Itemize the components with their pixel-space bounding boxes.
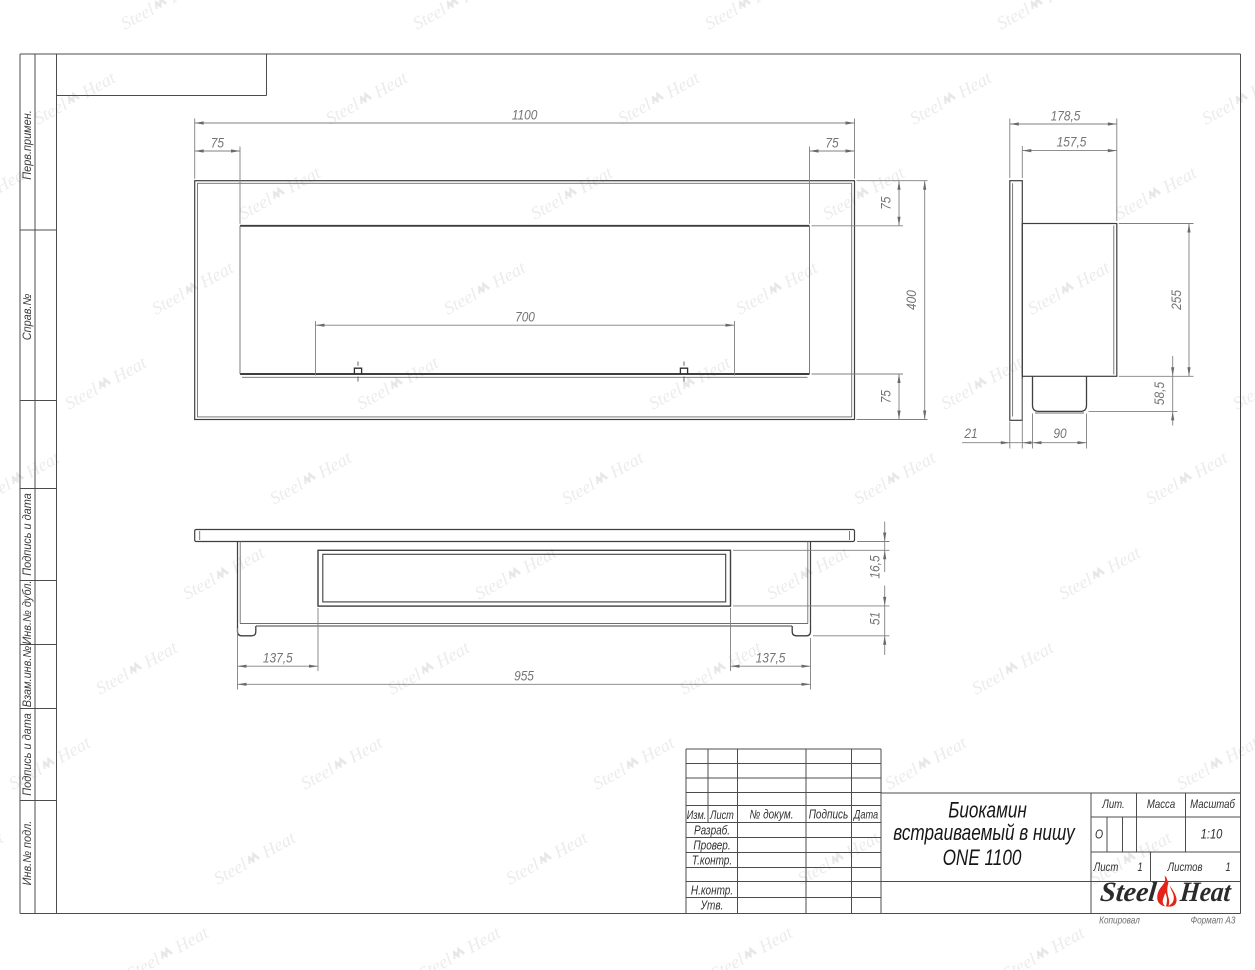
svg-text:Масштаб: Масштаб: [1190, 798, 1236, 811]
svg-text:О: О: [1095, 827, 1103, 841]
svg-text:1: 1: [1137, 861, 1142, 874]
svg-text:Взам.инв.№: Взам.инв.№: [22, 646, 34, 707]
svg-text:Лист: Лист: [1093, 861, 1119, 874]
svg-text:Изм.: Изм.: [687, 810, 707, 822]
svg-text:51: 51: [867, 612, 883, 625]
svg-text:75: 75: [211, 135, 225, 151]
svg-text:255: 255: [1168, 289, 1184, 310]
svg-text:Копировал: Копировал: [1099, 915, 1140, 926]
svg-text:Н.контр.: Н.контр.: [691, 885, 733, 898]
svg-text:400: 400: [903, 289, 919, 310]
svg-text:1100: 1100: [512, 107, 538, 123]
svg-text:1:10: 1:10: [1201, 826, 1223, 841]
svg-text:58,5: 58,5: [1151, 381, 1167, 405]
svg-text:Лист: Лист: [709, 810, 734, 822]
svg-text:Т.контр.: Т.контр.: [692, 855, 732, 868]
svg-text:Инв.№ дубл.: Инв.№ дубл.: [22, 580, 34, 644]
svg-text:137,5: 137,5: [263, 650, 293, 666]
svg-text:встраиваемый в нишу: встраиваемый в нишу: [893, 821, 1076, 846]
svg-text:Биокамин: Биокамин: [948, 799, 1027, 824]
svg-text:178,5: 178,5: [1051, 108, 1081, 124]
svg-text:90: 90: [1053, 425, 1067, 441]
svg-text:700: 700: [515, 309, 536, 325]
svg-text:16,5: 16,5: [867, 555, 883, 579]
svg-text:Подпись и дата: Подпись и дата: [22, 493, 34, 576]
svg-text:Справ.№: Справ.№: [22, 294, 34, 341]
svg-text:Листов: Листов: [1167, 861, 1203, 874]
svg-text:Разраб.: Разраб.: [694, 825, 730, 838]
svg-text:75: 75: [878, 196, 894, 210]
svg-text:Подпись: Подпись: [809, 809, 849, 822]
svg-text:Масса: Масса: [1147, 798, 1175, 811]
svg-text:Steel: Steel: [1099, 877, 1158, 908]
svg-text:Дата: Дата: [853, 810, 878, 822]
svg-text:75: 75: [878, 389, 894, 403]
svg-text:Провер.: Провер.: [693, 840, 730, 853]
svg-text:21: 21: [963, 425, 977, 441]
svg-text:157,5: 157,5: [1057, 134, 1087, 150]
svg-text:75: 75: [825, 135, 839, 151]
svg-text:1: 1: [1225, 861, 1230, 874]
svg-text:ONE 1100: ONE 1100: [943, 846, 1022, 871]
svg-text:955: 955: [514, 668, 535, 684]
svg-text:Heat: Heat: [1178, 876, 1234, 907]
svg-text:Лит.: Лит.: [1101, 798, 1124, 811]
svg-text:Подпись и дата: Подпись и дата: [22, 713, 34, 796]
svg-text:Формат А3: Формат А3: [1191, 915, 1236, 926]
svg-text:Инв.№ подл.: Инв.№ подл.: [22, 821, 34, 886]
svg-text:Перв.примен.: Перв.примен.: [22, 110, 34, 180]
svg-text:137,5: 137,5: [756, 650, 786, 666]
svg-text:№ докум.: № докум.: [750, 809, 794, 822]
svg-text:Утв.: Утв.: [700, 900, 724, 913]
